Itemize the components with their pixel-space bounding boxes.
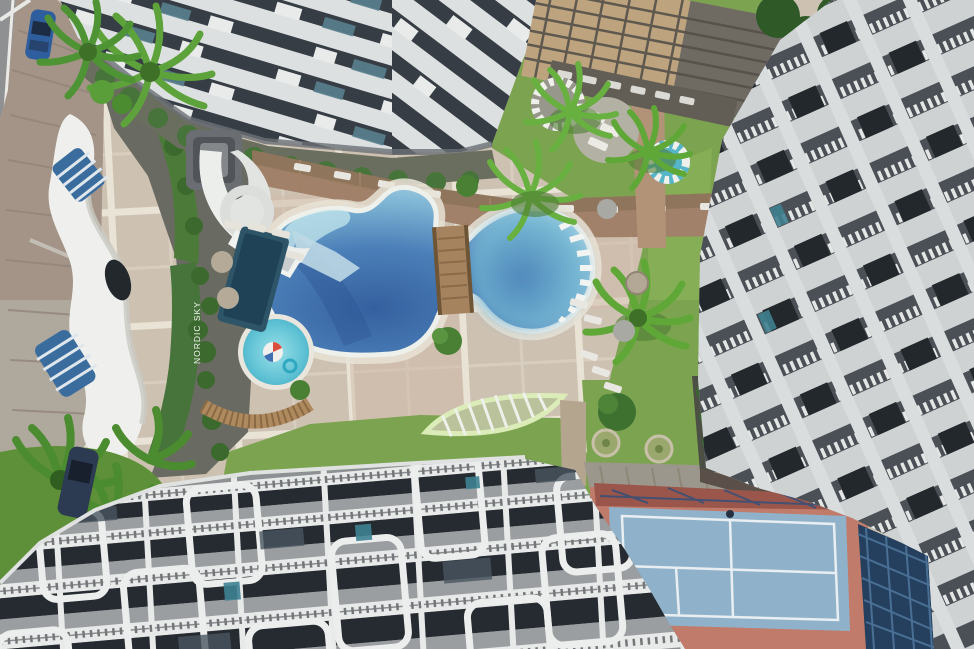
svg-text:NORDIC SKY: NORDIC SKY — [192, 301, 202, 364]
